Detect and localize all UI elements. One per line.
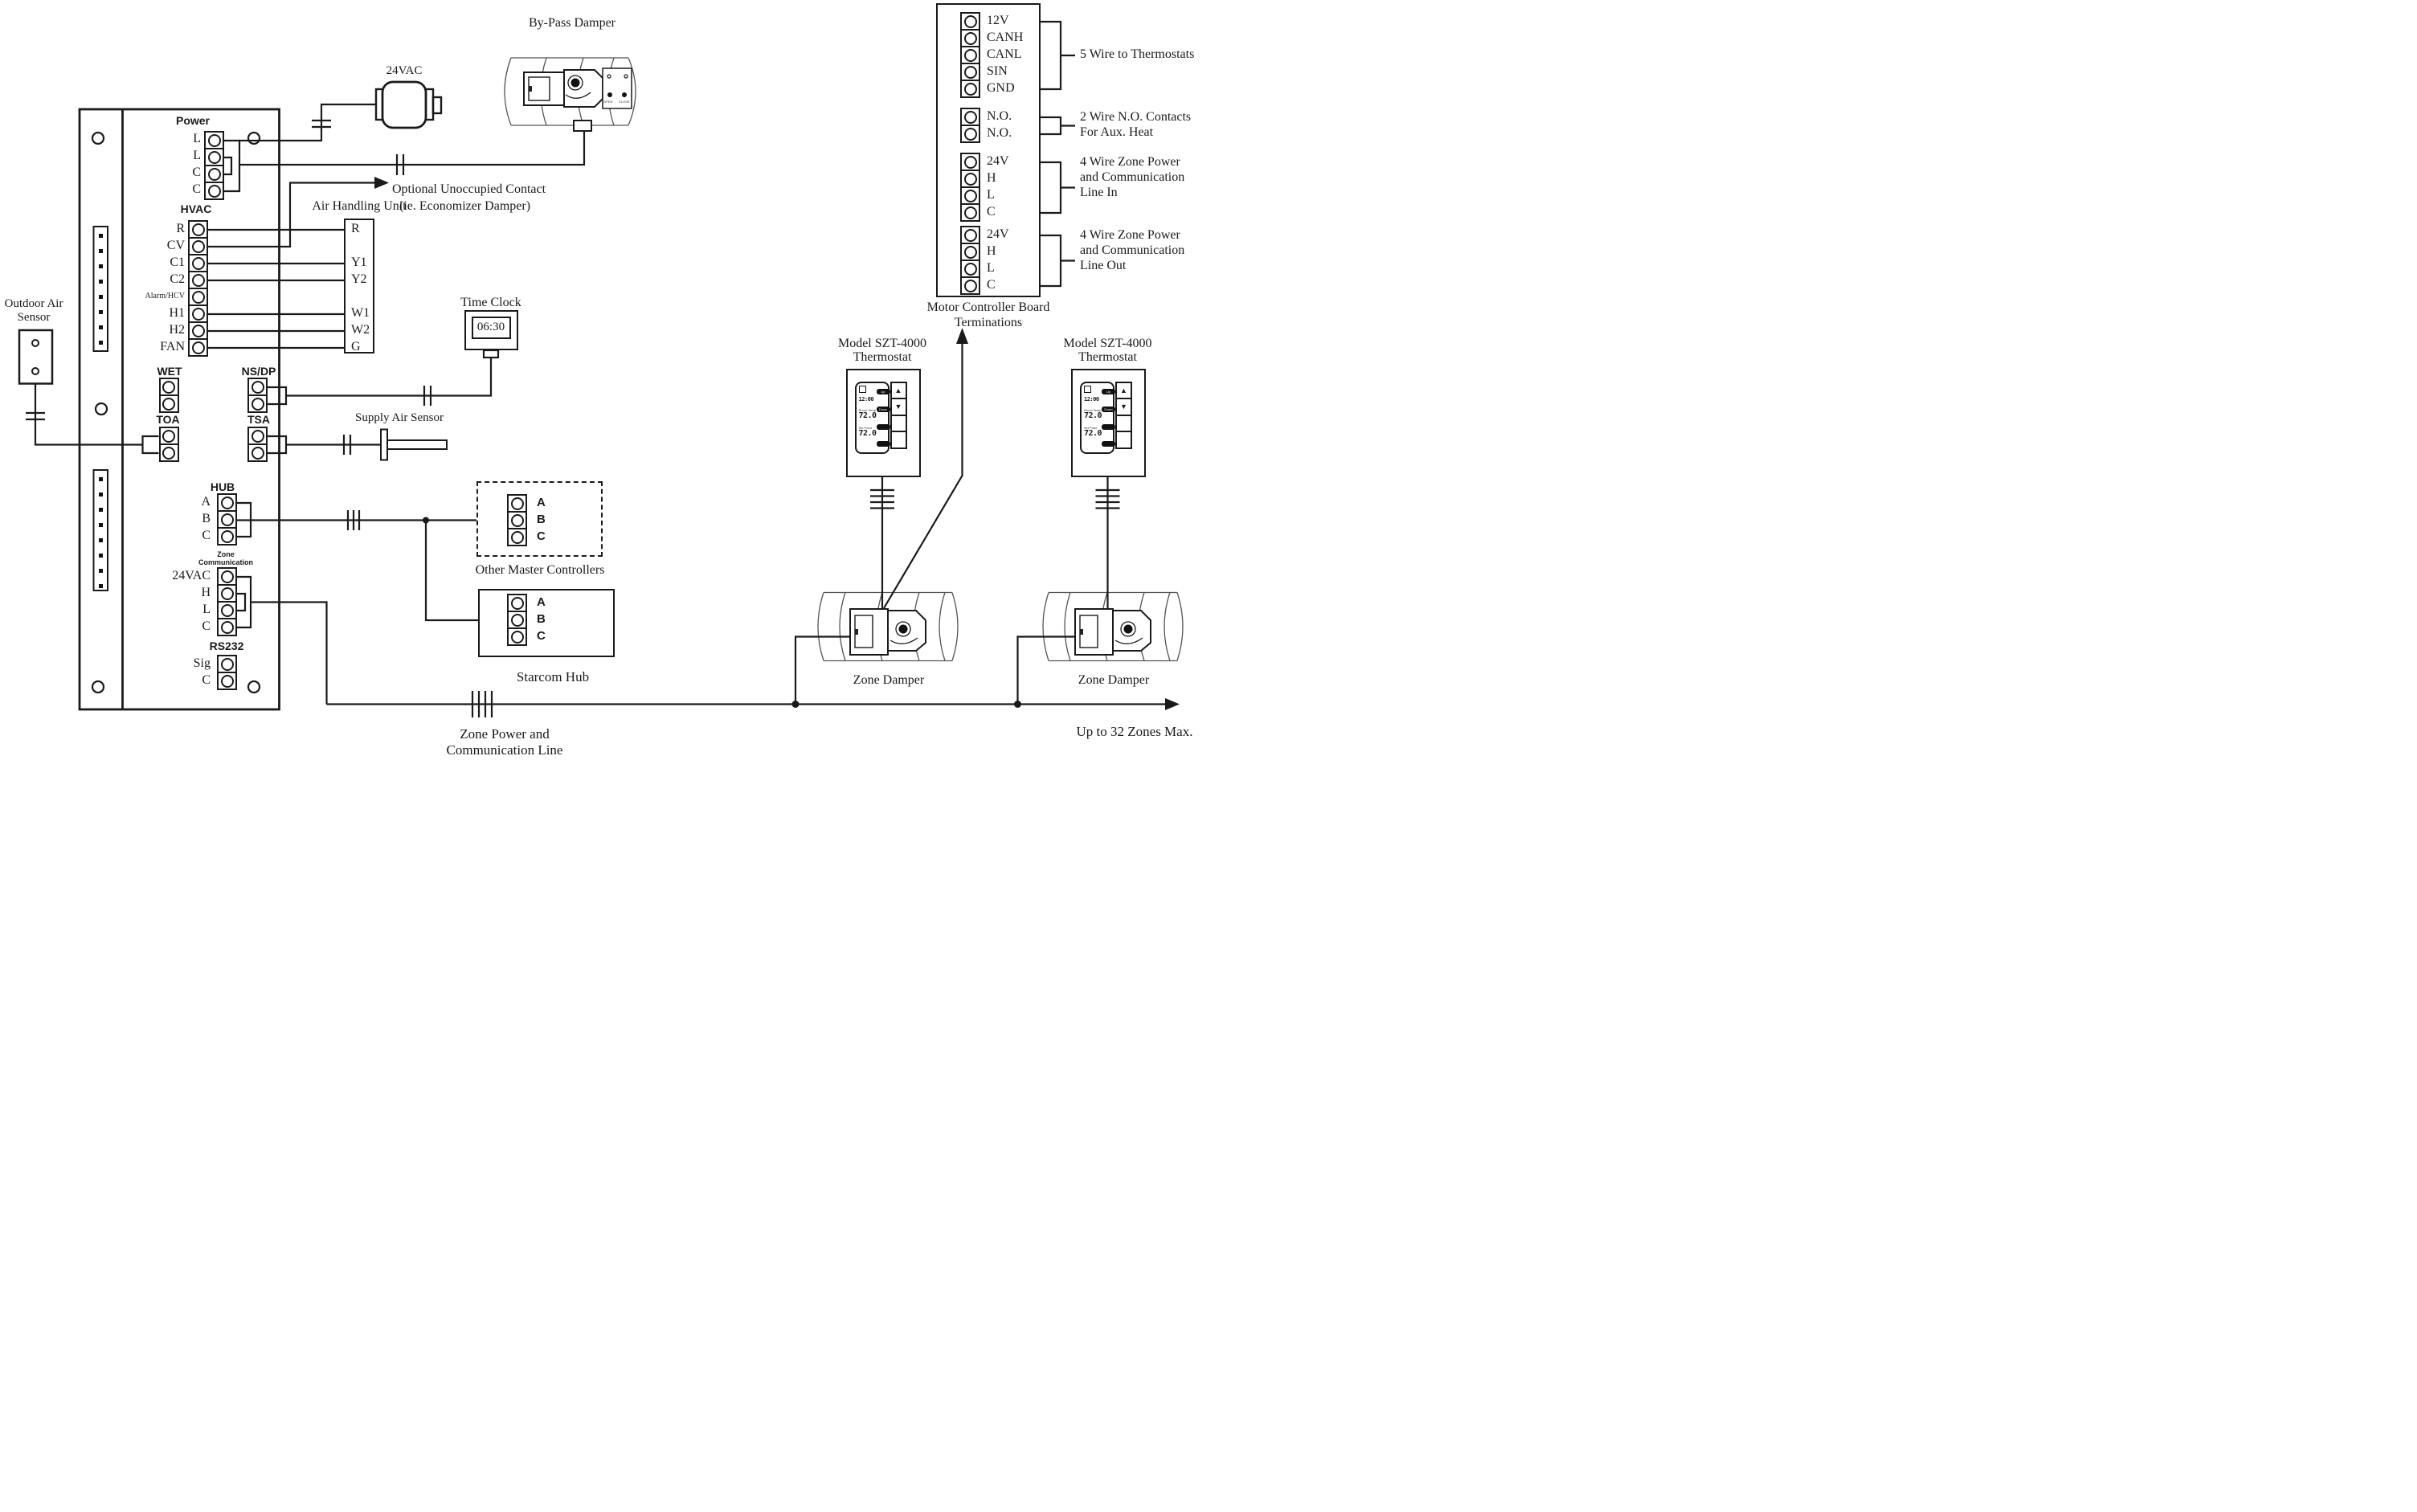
wire-thermostat2-drop: [1096, 476, 1120, 609]
outdoor-sensor-label-1: Outdoor Air: [5, 298, 63, 311]
wire-supply-sensor: [286, 435, 381, 455]
terminal: [962, 243, 979, 259]
terminal: [219, 510, 235, 527]
supply-sensor-label: Supply Air Sensor: [355, 412, 444, 425]
terminal: [962, 29, 979, 46]
motor-row-label: 24V: [987, 155, 1009, 169]
arrow-up-button[interactable]: ▲: [890, 382, 907, 400]
ahu-row-label: Y2: [351, 273, 367, 287]
thermostat2-time: 12:00: [1084, 397, 1099, 403]
time-clock-stub: [484, 350, 498, 358]
terminal: [219, 672, 235, 689]
power-header: Power: [176, 115, 210, 127]
wet-terminal-block: [159, 378, 179, 413]
wire-hub-network: [251, 510, 495, 620]
thermostat1-label-2: Thermostat: [853, 351, 912, 365]
motor-row-label: GND: [987, 82, 1015, 96]
power-row-label: L: [193, 149, 201, 163]
terminal: [161, 443, 178, 460]
zonecomm-terminal-block: [217, 567, 237, 636]
thermostat2-label-2: Thermostat: [1078, 351, 1137, 365]
rs232-header: RS232: [210, 640, 244, 652]
motor-row-label: 24V: [987, 228, 1009, 242]
terminal: [509, 511, 526, 528]
terminal: [962, 80, 979, 96]
bypass-open-label: OPEN: [603, 100, 612, 104]
terminal: [190, 321, 207, 338]
other-masters-terminal-block: [507, 494, 527, 546]
outdoor-sensor-label-2: Sensor: [18, 312, 51, 325]
terminal: [962, 170, 979, 186]
motor-row-label: CANH: [987, 31, 1023, 45]
terminal: [962, 154, 979, 170]
terminal: [509, 528, 526, 545]
terminal: [190, 271, 207, 288]
terminal: [962, 276, 979, 293]
down-button[interactable]: Down: [877, 407, 890, 412]
time-clock-time: 06:30: [477, 321, 505, 334]
bypass-damper-label: By-Pass Damper: [529, 17, 615, 31]
terminal: [509, 627, 526, 644]
zone-damper1-label: Zone Damper: [853, 674, 924, 688]
motor-note-3b: and Communication: [1080, 171, 1184, 185]
zonecomm-row-label: C: [202, 620, 211, 634]
terminal: [509, 611, 526, 627]
optional-contact-line2: (ie. Economizer Damper): [399, 200, 530, 214]
toa-terminal-block: [159, 427, 179, 462]
tsa-bracket: [268, 436, 286, 453]
zone-damper2-label: Zone Damper: [1078, 674, 1149, 688]
blank-button[interactable]: [1115, 415, 1132, 433]
ahu-row-label: R: [351, 223, 360, 236]
hvac-row-label: C2: [170, 273, 185, 287]
starcom-terminal-block: [507, 594, 527, 646]
motor-row-label: H: [987, 172, 996, 186]
mode-icon: [1084, 386, 1091, 393]
motor-row-label: SIN: [987, 65, 1008, 79]
motor-note-1: 5 Wire to Thermostats: [1080, 48, 1194, 62]
terminal: [962, 259, 979, 276]
override-button[interactable]: [1102, 441, 1115, 447]
terminal: [219, 618, 235, 635]
terminal: [962, 14, 979, 29]
zonecomm-row-label: 24VAC: [172, 570, 211, 583]
motor-note-2b: For Aux. Heat: [1080, 126, 1153, 140]
terminal: [962, 125, 979, 141]
supply-sensor-body: [381, 430, 447, 460]
thermostat1-label-1: Model SZT-4000: [838, 337, 926, 351]
terminal: [190, 304, 207, 321]
power-row-label: C: [192, 166, 201, 180]
motor-row-label: 12V: [987, 14, 1009, 28]
hvac-row-label: CV: [167, 239, 185, 253]
motor-row-label: C: [987, 279, 996, 292]
motor-board-label-2: Terminations: [955, 317, 1022, 330]
terminal: [219, 527, 235, 544]
starcom-row-label: A: [537, 596, 546, 609]
other-masters-label: Other Master Controllers: [476, 564, 605, 578]
terminal: [219, 495, 235, 510]
motor-group1-block: [960, 12, 980, 98]
terminal: [962, 46, 979, 63]
thermostat1: 12:00 Room Temp 72.0 Set Point 72.0 Up D…: [846, 369, 921, 477]
ahu-row-label: W1: [351, 307, 370, 321]
motor-row-label: N.O.: [987, 127, 1012, 141]
mode-button[interactable]: [1102, 424, 1115, 430]
motor-note-4a: 4 Wire Zone Power: [1080, 229, 1180, 243]
toa-header: TOA: [156, 414, 179, 426]
hvac-row-label: Alarm/HCV: [145, 292, 185, 301]
hub-header: HUB: [211, 481, 235, 493]
transformer-label: 24VAC: [386, 65, 423, 78]
zone-damper-2-actuator: [1075, 609, 1151, 655]
zone-damper-1-actuator: [850, 609, 926, 655]
blank-button[interactable]: [1115, 431, 1132, 449]
hvac-terminal-block: [188, 220, 208, 357]
motor-note-2a: 2 Wire N.O. Contacts: [1080, 111, 1191, 125]
other-masters-row-label: A: [537, 497, 546, 509]
nsdp-header: NS/DP: [242, 366, 276, 378]
arrow-down-button[interactable]: ▼: [890, 398, 907, 416]
hvac-row-label: C1: [170, 256, 185, 270]
hvac-row-label: H1: [169, 307, 185, 321]
time-clock-box: 06:30: [464, 310, 519, 350]
terminal: [161, 428, 178, 443]
motor-row-label: L: [987, 189, 995, 202]
hvac-row-label: R: [176, 223, 185, 236]
zonecomm-bracket: [237, 577, 251, 627]
wire-outdoor-sensor: [26, 384, 143, 445]
starcom-box: [478, 589, 615, 657]
optional-contact-line1: Optional Unoccupied Contact: [392, 183, 546, 197]
bypass-close-label: CLOSE: [619, 100, 630, 104]
zonecomm-header-2: Communication: [198, 559, 253, 566]
terminal: [509, 496, 526, 511]
ahu-row-label: G: [351, 341, 361, 354]
motor-note-3a: 4 Wire Zone Power: [1080, 156, 1180, 170]
hvac-row-label: H2: [169, 324, 185, 337]
thermostat1-room-temp: 72.0: [859, 412, 877, 421]
rs232-row-label: Sig: [194, 657, 211, 671]
zone-power-bus: [327, 691, 1180, 717]
motor-note-3c: Line In: [1080, 186, 1118, 200]
motor-note-4b: and Communication: [1080, 244, 1184, 258]
rs232-row-label: C: [202, 674, 211, 688]
mode-icon: [859, 386, 866, 393]
wire-power-to-bypass-damper: [239, 131, 584, 175]
terminal: [219, 584, 235, 601]
thermostat2: 12:00 Room Temp 72.0 Set Point 72.0 Up D…: [1071, 369, 1146, 477]
thermostat2-buttons: ▲ ▼: [1115, 382, 1132, 454]
blank-button[interactable]: [890, 415, 907, 433]
zone-power-label-1: Zone Power and: [460, 727, 549, 742]
ahu-label: Air Handling Unit: [312, 200, 406, 214]
terminal: [249, 428, 266, 443]
terminal: [190, 338, 207, 355]
wire-thermostat1-drop: [870, 476, 894, 609]
thermostat1-time: 12:00: [859, 397, 874, 403]
terminal: [206, 165, 223, 182]
starcom-row-label: C: [537, 630, 546, 643]
wire-nsdp-to-timeclock: [286, 358, 491, 406]
thermostat2-room-temp: 72.0: [1084, 412, 1102, 421]
transformer-24vac: [376, 82, 441, 128]
terminal: [962, 203, 979, 220]
tsa-terminal-block: [247, 427, 268, 462]
thermostat1-buttons: ▲ ▼: [890, 382, 907, 454]
terminal: [219, 601, 235, 618]
terminal: [249, 379, 266, 394]
terminal: [509, 595, 526, 611]
terminal: [962, 186, 979, 203]
wet-header: WET: [157, 366, 182, 378]
hub-terminal-block: [217, 493, 237, 546]
down-button[interactable]: Down: [1102, 407, 1115, 412]
rs232-terminal-block: [217, 655, 237, 690]
wiring-diagram: Power L L C C HVAC R CV C1 C2 Alarm/HCV …: [0, 0, 1208, 756]
wire-zonecomm-to-bus: [251, 603, 327, 705]
terminal: [161, 379, 178, 394]
other-masters-row-label: C: [537, 530, 546, 543]
terminal: [962, 63, 979, 80]
arrow-up-button[interactable]: ▲: [1115, 382, 1132, 400]
motor-board-brackets: [1041, 22, 1075, 286]
zone-power-label-2: Communication Line: [447, 743, 563, 756]
power-row-label: C: [192, 183, 201, 197]
hub-bracket: [237, 503, 251, 537]
terminal: [219, 656, 235, 672]
zonecomm-row-label: L: [202, 603, 211, 617]
terminal: [249, 394, 266, 411]
starcom-label: Starcom Hub: [517, 670, 589, 684]
nsdp-terminal-block: [247, 378, 268, 413]
terminal: [206, 148, 223, 165]
bypass-damper-actuator: [524, 68, 632, 131]
terminal: [190, 288, 207, 304]
motor-board-label-1: Motor Controller Board: [927, 301, 1050, 315]
time-clock-label: Time Clock: [460, 296, 521, 310]
outdoor-sensor-body: [19, 330, 52, 384]
other-masters-row-label: B: [537, 513, 546, 526]
terminal: [962, 109, 979, 125]
zonecomm-row-label: H: [201, 586, 211, 600]
override-button[interactable]: [877, 441, 890, 447]
blank-button[interactable]: [890, 431, 907, 449]
starcom-row-label: B: [537, 613, 546, 626]
motor-note-4c: Line Out: [1080, 259, 1126, 273]
time-clock-display: 06:30: [472, 317, 511, 339]
terminal: [190, 237, 207, 254]
hvac-row-label: FAN: [160, 341, 185, 354]
motor-group2-block: [960, 108, 980, 143]
motor-row-label: CANL: [987, 48, 1022, 62]
motor-group3-block: [960, 153, 980, 222]
up-button[interactable]: Up: [1102, 389, 1115, 394]
terminal: [190, 222, 207, 237]
terminal: [219, 569, 235, 584]
power-terminal-block: [204, 131, 224, 200]
thermostat2-set-point: 72.0: [1084, 430, 1102, 439]
ahu-row-label: W2: [351, 324, 370, 337]
terminal: [249, 443, 266, 460]
toa-bracket: [143, 436, 159, 453]
power-bracket: [224, 141, 239, 191]
mode-button[interactable]: [877, 424, 890, 430]
hub-row-label: B: [202, 513, 211, 526]
up-button[interactable]: Up: [877, 389, 890, 394]
thermostat1-set-point: 72.0: [859, 430, 877, 439]
terminal: [206, 182, 223, 198]
nsdp-bracket: [268, 387, 286, 404]
motor-row-label: C: [987, 206, 996, 219]
tsa-header: TSA: [247, 414, 270, 426]
ahu-row-label: Y1: [351, 256, 367, 270]
terminal: [190, 254, 207, 271]
power-row-label: L: [193, 133, 201, 146]
motor-group4-block: [960, 226, 980, 295]
motor-row-label: H: [987, 245, 996, 259]
thermostat2-label-1: Model SZT-4000: [1063, 337, 1151, 351]
hvac-header: HVAC: [181, 203, 212, 215]
hub-row-label: C: [202, 529, 211, 543]
arrow-down-button[interactable]: ▼: [1115, 398, 1132, 416]
terminal: [206, 133, 223, 148]
terminal: [161, 394, 178, 411]
motor-row-label: N.O.: [987, 110, 1012, 124]
max-zones-label: Up to 32 Zones Max.: [1077, 725, 1193, 739]
hub-row-label: A: [201, 496, 211, 509]
motor-row-label: L: [987, 262, 995, 276]
terminal: [962, 227, 979, 243]
